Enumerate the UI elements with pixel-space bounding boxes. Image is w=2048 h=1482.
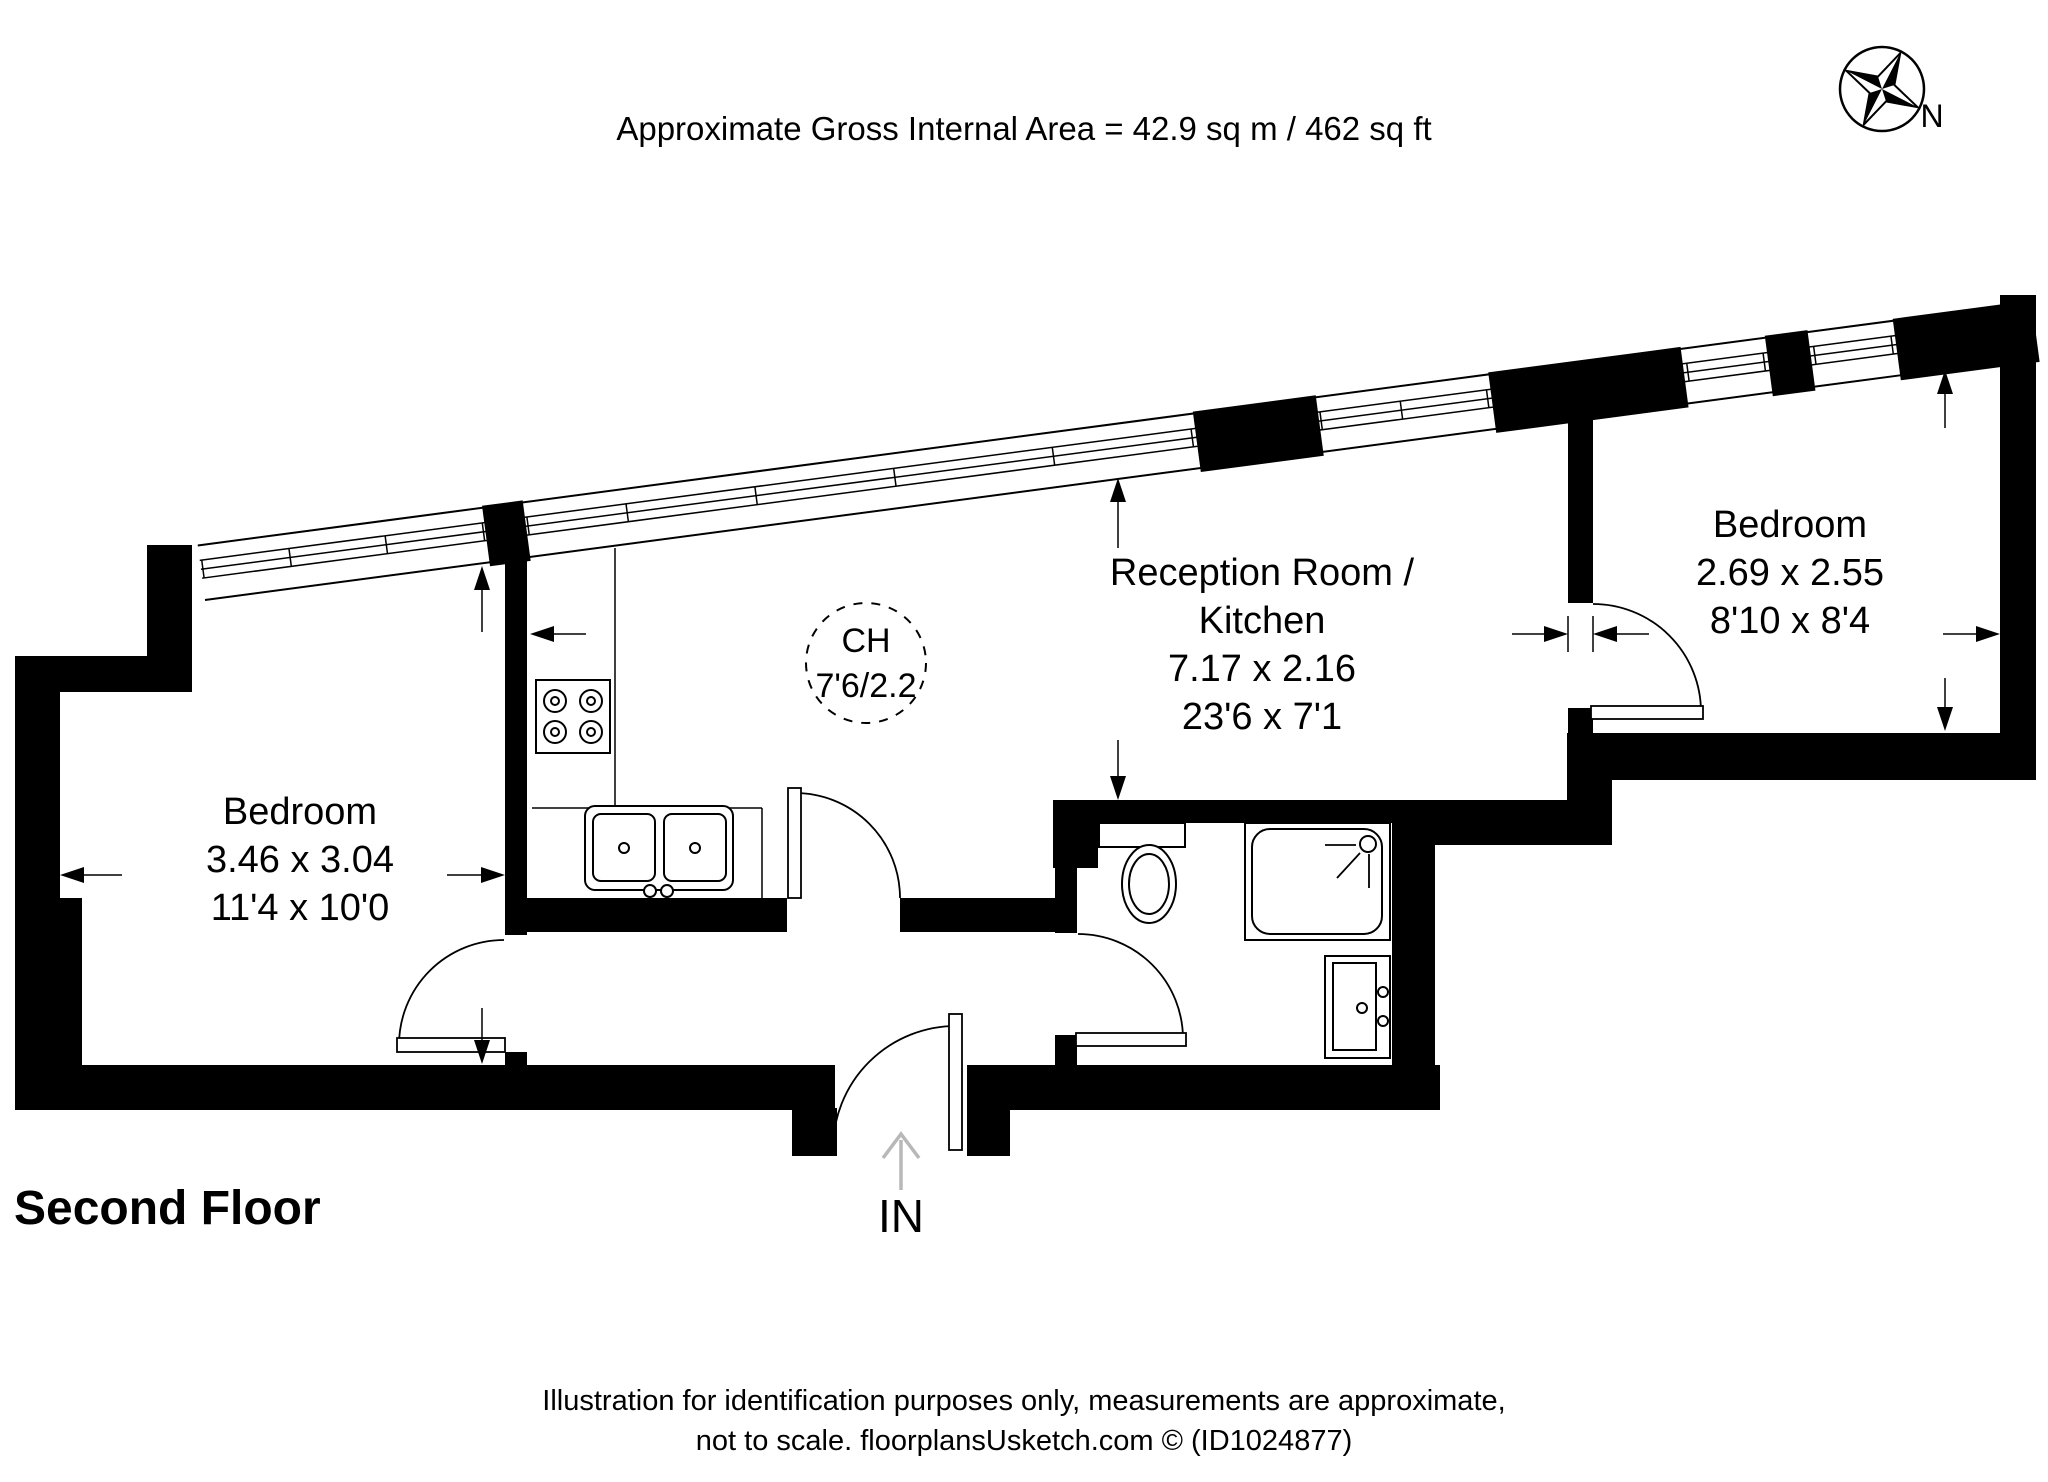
room-size-metric: 2.69 x 2.55 [1696,552,1884,594]
hob-icon [536,680,610,753]
basin-icon [1325,956,1390,1058]
wall-segment [505,1052,527,1067]
wall-segment [1567,733,2036,780]
room-name-line2: Kitchen [1199,600,1326,642]
room-name-line1: Reception Room / [1110,552,1415,594]
compass-north-label: N [1920,98,1943,134]
footer-line1: Illustration for identification purposes… [542,1385,1505,1417]
door-leaf-kitchen [788,788,801,898]
wall-segment [1053,800,1098,868]
shower-icon [1245,823,1390,940]
wall-segment [15,1065,835,1110]
room-size-imperial: 8'10 x 8'4 [1710,600,1870,642]
ch-value: 7'6/2.2 [815,667,916,705]
ceiling-height-badge: CH 7'6/2.2 [806,603,926,723]
door-leaf-bedroom-right [1591,706,1703,719]
door-leaf-entrance [949,1014,962,1150]
bedroom-right-label: Bedroom 2.69 x 2.55 8'10 x 8'4 [1696,504,1884,642]
wall-segment [505,548,527,935]
ch-label: CH [841,622,890,660]
floorplan-page: CH 7'6/2.2 N Approximate Gross Internal … [0,0,2048,1482]
room-name: Bedroom [223,791,377,833]
wall-segment [792,1108,837,1156]
ch-circle [806,603,926,723]
room-size-metric: 3.46 x 3.04 [206,839,394,881]
wall-segment [527,898,787,932]
floorplan: CH 7'6/2.2 N Approximate Gross Internal … [0,0,2048,1482]
area-note: Approximate Gross Internal Area = 42.9 s… [616,110,1431,147]
door-leaf-bathroom [1076,1033,1186,1046]
wall-segment [967,1108,1010,1156]
room-size-imperial: 23'6 x 7'1 [1182,696,1342,738]
wall-segment [1765,330,1816,396]
room-size-imperial: 11'4 x 10'0 [211,887,390,929]
entrance-label: IN [878,1190,924,1242]
wall-segment [1568,410,1593,603]
wall-segment [967,1065,1440,1110]
wall-segment [1098,800,1612,823]
wall-segment [1568,708,1593,733]
wall-segment [1055,868,1077,933]
wall-segment [2000,295,2036,780]
wall-segment [1055,1035,1077,1067]
sink-icon [585,806,733,897]
floor-label: Second Floor [14,1182,321,1235]
bedroom-left-label: Bedroom 3.46 x 3.04 11'4 x 10'0 [206,791,394,929]
room-size-metric: 7.17 x 2.16 [1168,648,1356,690]
wall-segment [900,898,1057,932]
footer-line2: not to scale. floorplansUsketch.com © (I… [696,1425,1352,1457]
wall-segment [1392,823,1435,1110]
room-name: Bedroom [1713,504,1867,546]
